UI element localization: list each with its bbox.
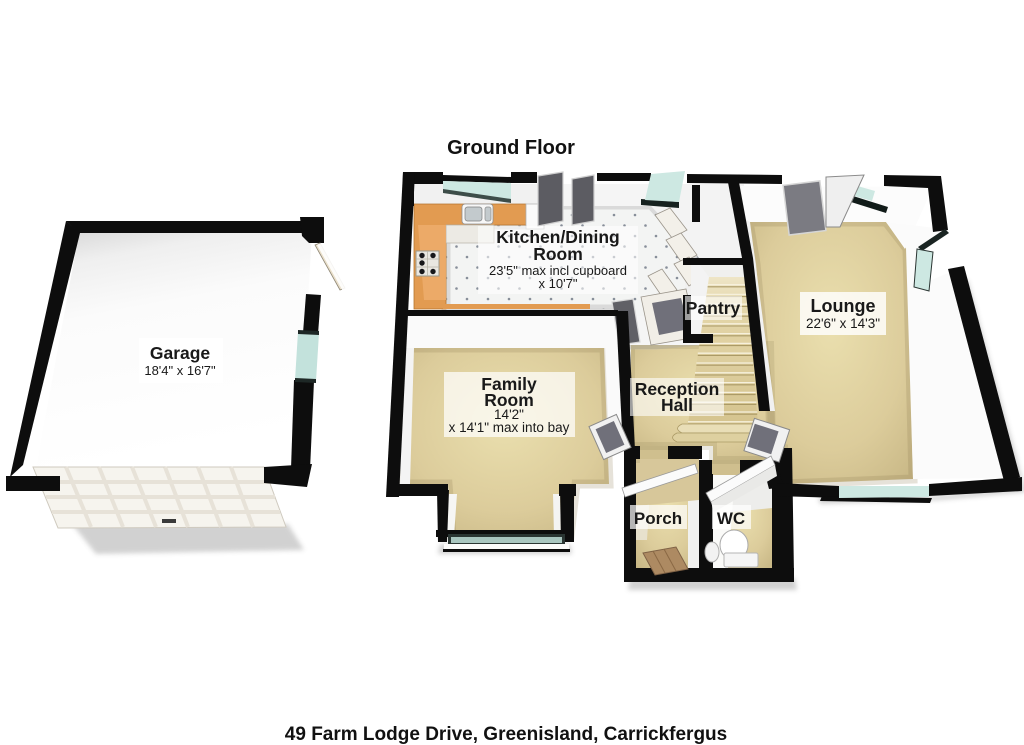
svg-text:49 Farm Lodge Drive, Greenisla: 49 Farm Lodge Drive, Greenisland, Carric…: [285, 724, 727, 745]
svg-text:Pantry: Pantry: [686, 298, 741, 318]
svg-text:Ground Floor: Ground Floor: [447, 137, 575, 159]
svg-text:Porch: Porch: [634, 509, 682, 528]
svg-text:Lounge: Lounge: [811, 296, 876, 316]
svg-text:22'6" x 14'3": 22'6" x 14'3": [806, 316, 880, 331]
svg-text:Garage: Garage: [150, 343, 211, 363]
svg-text:x 10'7": x 10'7": [539, 276, 578, 291]
svg-text:x 14'1" max into bay: x 14'1" max into bay: [449, 420, 570, 435]
svg-text:18'4" x 16'7": 18'4" x 16'7": [144, 363, 216, 378]
svg-text:WC: WC: [717, 509, 745, 528]
svg-text:Room: Room: [533, 244, 583, 264]
svg-text:Hall: Hall: [661, 395, 693, 415]
